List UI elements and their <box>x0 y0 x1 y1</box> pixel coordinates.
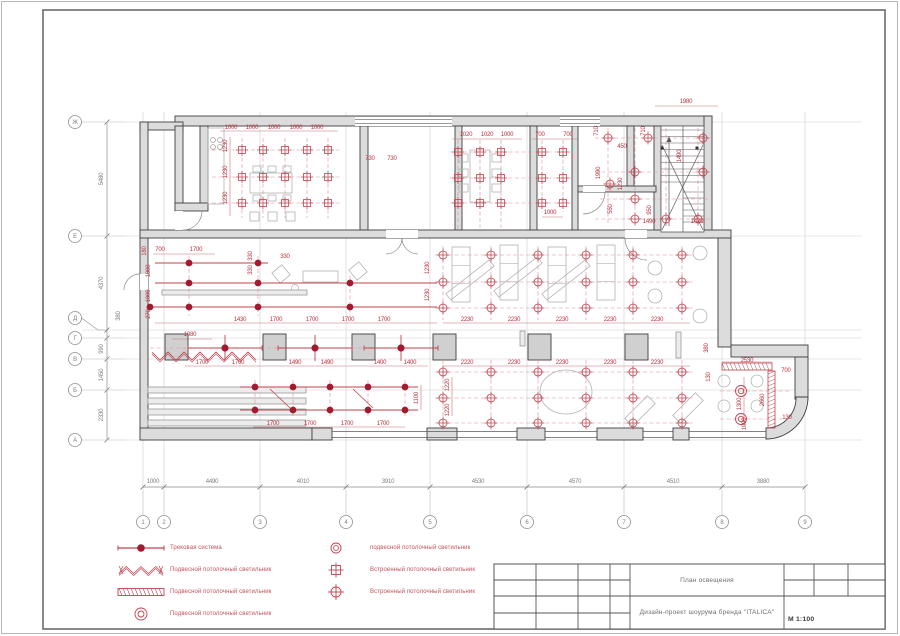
svg-text:1700: 1700 <box>341 421 354 427</box>
svg-text:1700: 1700 <box>270 317 283 323</box>
svg-text:1000: 1000 <box>146 264 152 277</box>
legend-item: Подвесной потолочный светильник <box>112 559 271 581</box>
recessed-light-square-symbol <box>316 562 356 578</box>
svg-text:1400: 1400 <box>404 360 417 366</box>
svg-text:710: 710 <box>641 125 647 135</box>
svg-text:1100: 1100 <box>414 391 420 404</box>
svg-text:1020: 1020 <box>481 132 494 138</box>
legend-column-2: подвесной потолочный светильник Встроенн… <box>316 537 475 603</box>
legend-item: Встроенный потолочный светильник <box>316 559 475 581</box>
legend-item-label: Подвесной потолочный светильник <box>170 589 271 595</box>
svg-text:1080: 1080 <box>184 332 197 338</box>
svg-text:Б: Б <box>73 388 77 394</box>
svg-text:950: 950 <box>647 204 653 214</box>
svg-text:990: 990 <box>99 343 105 353</box>
svg-text:2660: 2660 <box>760 393 766 406</box>
svg-text:1000: 1000 <box>501 132 514 138</box>
legend-item: Трековая система <box>112 537 271 559</box>
svg-text:330: 330 <box>248 250 254 260</box>
legend-item-label: Трековая система <box>170 545 222 551</box>
svg-text:А: А <box>73 438 77 444</box>
pendant-light-circle-symbol <box>112 606 170 622</box>
svg-text:1230: 1230 <box>618 177 624 190</box>
legend-item-label: Встроенный потолочный светильник <box>370 589 475 595</box>
svg-text:1700: 1700 <box>342 317 355 323</box>
svg-text:1700: 1700 <box>306 317 319 323</box>
recessed-light-round-symbol <box>316 584 356 600</box>
svg-text:730: 730 <box>387 156 397 162</box>
svg-text:1000: 1000 <box>147 479 160 485</box>
svg-text:4010: 4010 <box>297 479 310 485</box>
svg-text:2230: 2230 <box>508 317 521 323</box>
svg-text:3910: 3910 <box>382 479 395 485</box>
svg-text:4370: 4370 <box>99 276 105 289</box>
svg-text:4530: 4530 <box>472 479 485 485</box>
svg-text:1430: 1430 <box>234 317 247 323</box>
svg-text:1220: 1220 <box>445 403 451 416</box>
pendant-light-circle-symbol <box>316 540 356 556</box>
legend-item-label: подвесной потолочный светильник <box>370 545 470 551</box>
svg-text:380: 380 <box>116 310 122 320</box>
svg-text:1980: 1980 <box>680 99 693 105</box>
staircase <box>661 126 704 232</box>
svg-text:1400: 1400 <box>374 360 387 366</box>
svg-text:2330: 2330 <box>99 408 105 421</box>
svg-text:2230: 2230 <box>651 360 664 366</box>
svg-text:Д: Д <box>73 316 77 322</box>
svg-text:700: 700 <box>563 132 573 138</box>
svg-text:1490: 1490 <box>677 149 683 162</box>
svg-text:2230: 2230 <box>604 317 617 323</box>
pendant-light-hatch-symbol <box>112 584 170 600</box>
svg-text:1020: 1020 <box>460 132 473 138</box>
title-block-project-name: Дизайн-проект шоурума бренда "ITALICA" <box>630 596 784 629</box>
svg-text:1000: 1000 <box>146 289 152 302</box>
svg-text:Ж: Ж <box>72 120 78 126</box>
svg-text:4490: 4490 <box>206 479 219 485</box>
svg-text:550: 550 <box>608 203 614 213</box>
track-system-symbol <box>112 540 170 556</box>
svg-text:4510: 4510 <box>667 479 680 485</box>
svg-text:1700: 1700 <box>304 421 317 427</box>
svg-text:3880: 3880 <box>757 479 770 485</box>
legend-column-1: Трековая система Подвесной потолочный св… <box>112 537 271 625</box>
svg-text:700: 700 <box>155 247 165 253</box>
svg-text:1000: 1000 <box>544 210 557 216</box>
svg-text:1490: 1490 <box>321 360 334 366</box>
legend-item: подвесной потолочный светильник <box>316 537 475 559</box>
svg-text:5480: 5480 <box>99 172 105 185</box>
hatched-pendant-strips <box>722 363 775 428</box>
svg-text:1230: 1230 <box>223 139 229 152</box>
svg-text:1230: 1230 <box>223 191 229 204</box>
svg-text:730: 730 <box>365 156 375 162</box>
svg-text:1230: 1230 <box>223 165 229 178</box>
svg-text:330: 330 <box>248 264 254 274</box>
svg-text:1490: 1490 <box>289 360 302 366</box>
svg-text:1000: 1000 <box>225 125 238 131</box>
svg-text:710: 710 <box>594 125 600 135</box>
svg-text:1700: 1700 <box>232 360 245 366</box>
legend-item: Подвесной потолочный светильник <box>112 581 271 603</box>
svg-text:700: 700 <box>781 368 791 374</box>
drawing-sheet: 1000100010001000100012301230123073073010… <box>0 0 900 636</box>
title-block-sheet-title: План освещения <box>630 564 784 596</box>
svg-text:1490: 1490 <box>643 219 656 225</box>
svg-text:1000: 1000 <box>246 125 259 131</box>
svg-text:130: 130 <box>706 371 712 381</box>
title-block-scale: М 1:100 <box>788 612 878 626</box>
legend-item-label: Подвесной потолочный светильник <box>170 567 271 573</box>
pendant-light-zigzag-symbol <box>112 562 170 578</box>
svg-text:2530: 2530 <box>741 358 754 364</box>
svg-text:4570: 4570 <box>569 479 582 485</box>
svg-text:180: 180 <box>142 245 148 255</box>
svg-text:1700: 1700 <box>196 360 209 366</box>
svg-text:1450: 1450 <box>99 368 105 381</box>
svg-text:1000: 1000 <box>311 125 324 131</box>
svg-text:2230: 2230 <box>651 317 664 323</box>
svg-text:1220: 1220 <box>445 378 451 391</box>
legend-item-label: Встроенный потолочный светильник <box>370 567 475 573</box>
svg-text:2230: 2230 <box>508 360 521 366</box>
svg-text:Е: Е <box>73 234 77 240</box>
svg-text:130: 130 <box>782 415 792 421</box>
svg-text:1700: 1700 <box>377 421 390 427</box>
svg-text:700: 700 <box>535 132 545 138</box>
legend-item: Встроенный потолочный светильник <box>316 581 475 603</box>
svg-text:2220: 2220 <box>461 360 474 366</box>
svg-text:330: 330 <box>280 254 290 260</box>
svg-text:В: В <box>73 357 77 363</box>
svg-text:1300: 1300 <box>737 397 743 410</box>
svg-text:1090: 1090 <box>742 417 748 430</box>
legend-item: Подвесной потолочный светильник <box>112 603 271 625</box>
svg-text:1990: 1990 <box>596 166 602 179</box>
svg-text:2230: 2230 <box>604 360 617 366</box>
svg-text:1230: 1230 <box>425 261 431 274</box>
svg-text:2230: 2230 <box>461 317 474 323</box>
svg-text:1230: 1230 <box>425 288 431 301</box>
svg-text:1000: 1000 <box>290 125 303 131</box>
svg-text:1000: 1000 <box>268 125 281 131</box>
legend-item-label: Подвесной потолочный светильник <box>170 611 271 617</box>
svg-text:380: 380 <box>704 342 710 352</box>
svg-text:2230: 2230 <box>556 317 569 323</box>
svg-text:1420: 1420 <box>691 219 704 225</box>
svg-text:1700: 1700 <box>378 317 391 323</box>
svg-text:1700: 1700 <box>190 247 203 253</box>
svg-text:1700: 1700 <box>267 421 280 427</box>
svg-text:450: 450 <box>617 144 627 150</box>
svg-text:2230: 2230 <box>556 360 569 366</box>
svg-text:270: 270 <box>146 308 152 318</box>
structural-grid <box>82 112 862 515</box>
